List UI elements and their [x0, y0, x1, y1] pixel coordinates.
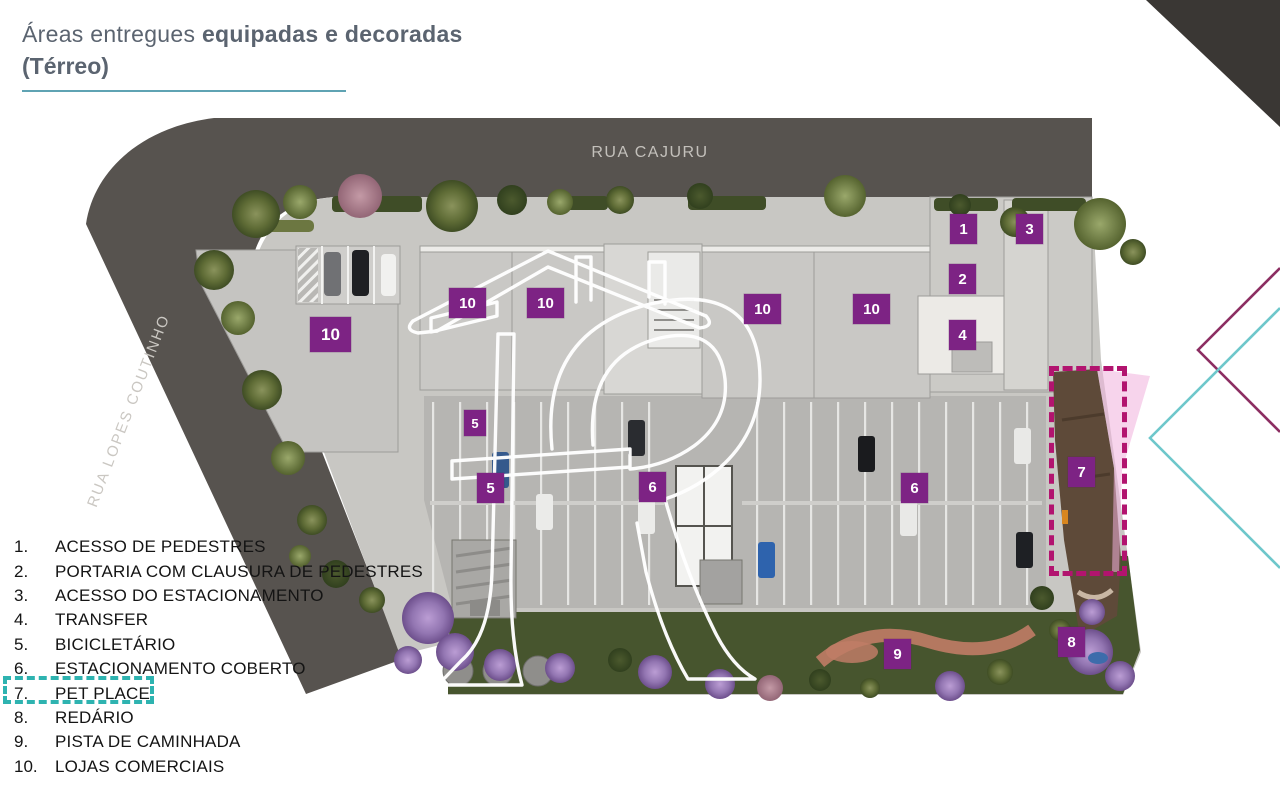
plan-marker-10b: 10 [449, 288, 486, 318]
legend-item-8: 8.REDÁRIO [14, 706, 423, 730]
plan-marker-8: 8 [1058, 627, 1085, 657]
plan-marker-3: 3 [1016, 214, 1043, 244]
legend-number: 8. [14, 708, 55, 728]
plan-marker-5b: 5 [477, 473, 504, 503]
legend-item-5: 5.BICICLETÁRIO [14, 633, 423, 657]
legend-number: 10. [14, 757, 55, 777]
plan-marker-10e: 10 [853, 294, 890, 324]
legend-item-9: 9.PISTA DE CAMINHADA [14, 730, 423, 754]
plan-marker-5a: 5 [464, 410, 486, 436]
legend-label: ACESSO DO ESTACIONAMENTO [55, 586, 324, 606]
legend-item-1: 1.ACESSO DE PEDESTRES [14, 535, 423, 559]
legend-item-10: 10.LOJAS COMERCIAIS [14, 755, 423, 779]
legend-number: 4. [14, 610, 55, 630]
legend-label: ACESSO DE PEDESTRES [55, 537, 266, 557]
legend-label: BICICLETÁRIO [55, 635, 175, 655]
plan-marker-10d: 10 [744, 294, 781, 324]
legend-number: 9. [14, 732, 55, 752]
legend-label: PORTARIA COM CLAUSURA DE PEDESTRES [55, 562, 423, 582]
legend-number: 5. [14, 635, 55, 655]
plan-marker-10c: 10 [527, 288, 564, 318]
legend-number: 1. [14, 537, 55, 557]
plan-legend: 1.ACESSO DE PEDESTRES 2.PORTARIA COM CLA… [14, 535, 423, 779]
plan-marker-9: 9 [884, 639, 911, 669]
legend-label: TRANSFER [55, 610, 148, 630]
legend-number: 2. [14, 562, 55, 582]
legend-item-7-highlight-box [3, 676, 154, 704]
legend-item-3: 3.ACESSO DO ESTACIONAMENTO [14, 584, 423, 608]
legend-number: 3. [14, 586, 55, 606]
plan-marker-6b: 6 [901, 473, 928, 503]
plan-marker-2: 2 [949, 264, 976, 294]
legend-item-2: 2.PORTARIA COM CLAUSURA DE PEDESTRES [14, 559, 423, 583]
legend-label: REDÁRIO [55, 708, 134, 728]
legend-item-4: 4.TRANSFER [14, 608, 423, 632]
plan-marker-10a: 10 [310, 317, 351, 352]
legend-label: LOJAS COMERCIAIS [55, 757, 224, 777]
legend-label: PISTA DE CAMINHADA [55, 732, 241, 752]
plan-marker-4: 4 [949, 320, 976, 350]
plan-marker-7: 7 [1068, 457, 1095, 487]
plan-marker-6a: 6 [639, 472, 666, 502]
plan-marker-1: 1 [950, 214, 977, 244]
